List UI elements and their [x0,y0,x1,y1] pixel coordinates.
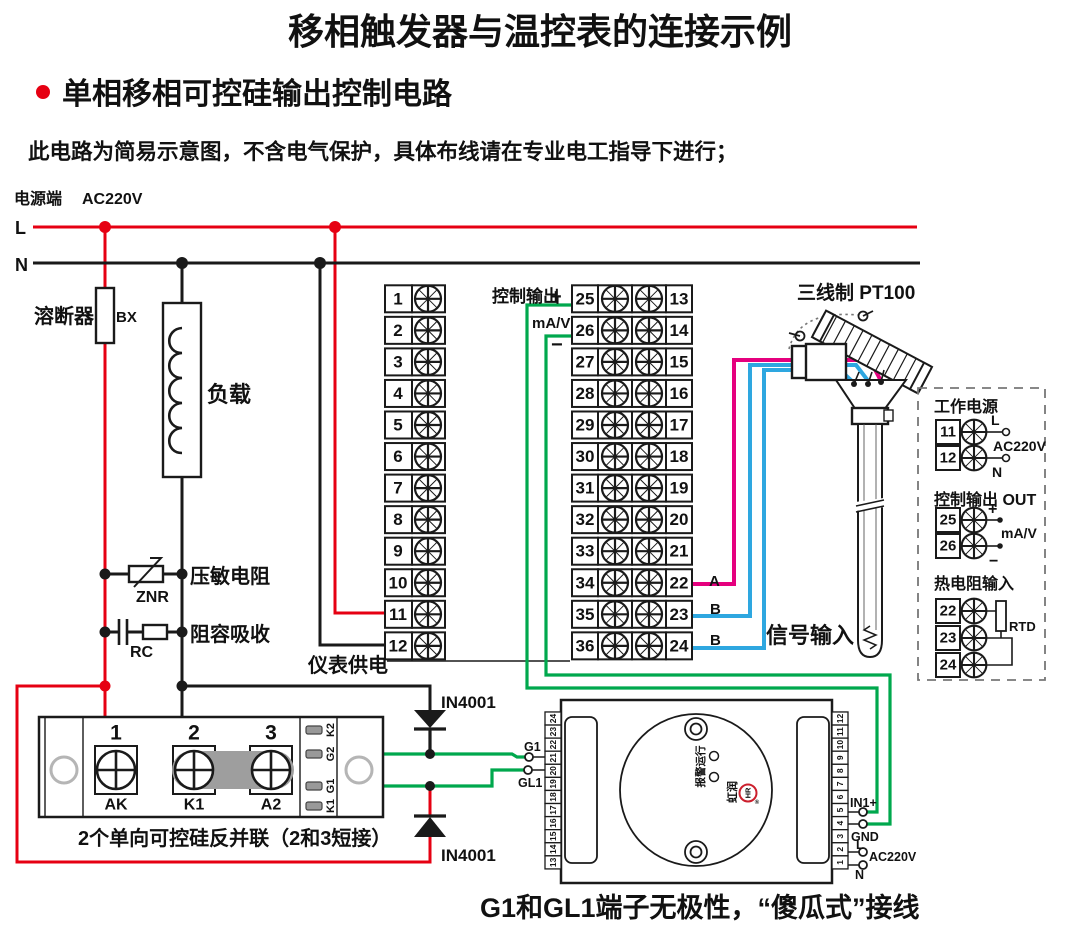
screw-terminal-icon [415,601,441,627]
terminal-number: 27 [576,352,595,371]
terminal-number: 7 [835,781,845,786]
svg-text:虹润: 虹润 [725,781,739,803]
fuse-label: 溶断器 [34,304,95,328]
terminal-number: 15 [548,831,558,841]
alarm-label: 报警 [694,766,707,787]
svg-text:2: 2 [188,722,200,745]
svg-text:+: + [988,501,997,518]
terminal-number: 13 [670,289,689,308]
sensor-flange [852,408,888,424]
gl1-label: GL1 [518,776,542,790]
panel-mav: mA/V [1001,525,1037,541]
load-label: 负载 [207,382,251,407]
screw-terminal-icon [602,317,628,343]
terminal-number: 22 [548,740,558,750]
rc-code: RC [130,644,154,661]
trigger-right-strip: 121110987654321 [832,712,848,869]
svg-text:®: ® [755,799,760,806]
screw-terminal-icon [636,444,662,470]
terminal-number: 6 [835,794,845,799]
terminal-number: 2 [393,321,402,340]
panel-voltage: AC220V [993,438,1047,454]
terminal-number: 19 [548,779,558,789]
svg-text:3: 3 [265,722,277,745]
trigger-voltage-label: AC220V [869,850,917,864]
alarm-led [710,773,719,782]
trigger-left-connections: G1 GL1 [518,740,545,790]
terminal-number: 24 [548,714,558,724]
terminal-number: 7 [393,479,402,498]
screw-terminal-icon [636,507,662,533]
terminal-number: 17 [548,805,558,815]
screw-terminal-icon [602,444,628,470]
terminal-number: 18 [670,447,689,466]
screw-terminal-icon [415,444,441,470]
terminal-number: 9 [835,755,845,760]
terminal-number: 20 [548,766,558,776]
screw-terminal-icon [415,633,441,659]
panel-power-title: 工作电源 [934,397,998,416]
terminal-number: 33 [576,542,595,561]
terminal-number: 6 [393,447,402,466]
terminal-number: 2 [835,847,845,852]
svg-text:A2: A2 [261,797,282,814]
terminal-number: 32 [576,510,595,529]
pt100-sensor: 三线制 PT100 [789,281,932,657]
svg-text:HR: HR [744,787,753,798]
terminal-number: 11 [835,727,845,736]
screw-terminal-icon [415,507,441,533]
ctrl-minus-label: − [551,334,563,356]
in1-label: IN1+ [850,796,877,810]
terminal-number: 24 [670,636,689,655]
terminal-number: 35 [576,605,595,624]
panel-row-26: 26 − [936,534,1003,570]
screw-terminal-icon [636,475,662,501]
ctrl-plus-label: + [550,286,562,308]
screw-terminal-icon [636,286,662,312]
rc-snubber-symbol: 阻容吸收 RC [105,619,270,661]
screw-terminal-icon [415,380,441,406]
svg-text:L: L [991,412,1000,428]
terminal-number: 9 [393,542,402,561]
terminal-number: 30 [576,447,595,466]
line-n-label: N [15,255,28,275]
rc-label: 阻容吸收 [190,622,270,646]
load-symbol: 负载 [163,303,251,477]
svg-text:N: N [992,464,1002,480]
panel-rtd-title: 热电阻输入 [934,574,1014,593]
terminal-number: 10 [835,740,845,750]
svg-text:IN4001: IN4001 [441,693,496,712]
terminal-number: 21 [670,542,689,561]
screw-terminal-icon [415,286,441,312]
terminal-number: 22 [670,573,689,592]
svg-text:11: 11 [940,424,956,441]
svg-text:−: − [989,553,998,570]
line-l-label: L [15,218,26,238]
terminal-number: 14 [548,844,558,854]
trigger-left-strip: 242322212019181716151413 [545,712,561,869]
varistor-symbol: 压敏电阻 ZNR [105,558,270,606]
screw-terminal-icon [602,286,628,312]
wire-b2-label: B [710,632,721,649]
sensor-body [806,344,846,380]
svg-text:25: 25 [940,512,957,529]
scr-module: 1 2 3 AK K1 A2 K2 G2 G1 K1 2个单向可控硅反并联（2和… [39,717,391,850]
terminal-number: 10 [389,573,408,592]
terminal-number: 19 [670,479,689,498]
svg-text:K1: K1 [325,799,337,813]
diagram-canvas: 移相触发器与温控表的连接示例 单相移相可控硅输出控制电路 此电路为简易示意图，不… [0,0,1080,948]
trigger-l-label: L [856,838,864,852]
terminal-number: 8 [835,768,845,773]
screw-terminal-icon [602,633,628,659]
wire-b1-label: B [710,601,721,618]
terminal-number: 4 [393,384,403,403]
terminal-number: 14 [670,321,689,340]
g1-label: G1 [524,740,541,754]
sensor-tube [858,424,882,657]
svg-text:IN4001: IN4001 [441,846,496,865]
svg-text:K1: K1 [184,797,205,814]
bullet-dot [36,85,50,99]
svg-text:G1: G1 [325,779,337,794]
screw-terminal-icon [636,570,662,596]
screw-terminal-icon [602,412,628,438]
bottom-note: G1和GL1端子无极性，“傻瓜式”接线 [480,893,920,923]
terminal-number: 12 [389,636,408,655]
run-led [710,752,719,761]
svg-text:22: 22 [940,603,957,620]
screw-terminal-icon [602,538,628,564]
terminal-number: 15 [670,352,689,371]
svg-text:23: 23 [940,630,957,647]
terminal-detail-panel: 工作电源 11 L AC220V 12 N 控制输出 OUT 25 + mA [918,388,1047,680]
terminal-number: 31 [576,479,595,498]
svg-text:26: 26 [940,538,957,555]
terminal-number: 11 [389,605,407,624]
scr-caption: 2个单向可控硅反并联（2和3短接） [78,826,391,850]
terminal-number: 34 [576,573,595,592]
terminal-number: 36 [576,636,595,655]
terminal-number: 20 [670,510,689,529]
terminal-number: 5 [835,807,845,812]
diode-bottom: IN4001 [414,816,496,865]
screw-terminal-icon [415,349,441,375]
screw-terminal-icon [636,412,662,438]
terminal-number: 26 [576,321,595,340]
terminal-number: 23 [670,605,689,624]
terminal-number: 16 [548,818,558,828]
meter-left-terminal-block: 123456789101112 [385,285,445,659]
terminal-number: 13 [548,857,558,867]
screw-terminal-icon [602,349,628,375]
power-source-label: 电源端 [14,189,62,208]
terminal-number: 28 [576,384,595,403]
screw-terminal-icon [636,380,662,406]
screw-terminal-icon [602,380,628,406]
terminal-number: 1 [393,289,402,308]
page-title: 移相触发器与温控表的连接示例 [288,11,792,52]
power-voltage-label: AC220V [82,191,143,208]
screw-terminal-icon [602,601,628,627]
terminal-number: 18 [548,792,558,802]
screw-terminal-icon [636,633,662,659]
trigger-module: 运行 报警 虹润 HR ® [561,700,832,883]
screw-terminal-icon [602,475,628,501]
terminal-number: 23 [548,727,558,737]
terminal-number: 1 [835,860,845,865]
panel-rtd-label: RTD [1009,619,1036,634]
meter-mid-terminal-block: 252627282930313233343536 [572,285,666,659]
warning-note: 此电路为简易示意图，不含电气保护，具体布线请在专业电工指导下进行； [28,139,738,164]
screw-terminal-icon [415,475,441,501]
screw-terminal-icon [415,570,441,596]
terminal-number: 3 [835,834,845,839]
panel-row-22: 22 [936,599,986,624]
sensor-funnel [836,380,906,410]
screw-terminal-icon [415,412,441,438]
terminal-number: 25 [576,289,595,308]
screw-terminal-icon [636,349,662,375]
meter-right-terminal-numbers: 131415161718192021222324 [666,285,692,659]
svg-text:AK: AK [104,797,128,814]
terminal-number: 5 [393,416,402,435]
fuse-code: BX [116,309,137,326]
terminal-number: 4 [835,821,845,826]
panel-out-title: 控制输出 OUT [934,490,1036,509]
sensor-flange-tab [884,410,893,421]
diode-top: IN4001 [414,693,496,754]
screw-terminal-icon [636,538,662,564]
signal-input-label: 信号输入 [766,623,854,648]
terminal-number: 3 [393,352,402,371]
svg-text:1: 1 [110,722,122,745]
screw-terminal-icon [636,317,662,343]
subtitle: 单相移相可控硅输出控制电路 [62,78,453,111]
run-label: 运行 [694,745,707,766]
panel-row-24: 24 [936,653,986,678]
meter-supply-label: 仪表供电 [307,653,388,677]
trigger-right-connections: IN1+ GND L AC220V N [848,796,917,882]
svg-text:24: 24 [940,657,957,674]
terminal-number: 29 [576,416,595,435]
ctrl-mav-label: mA/V [532,315,570,332]
svg-text:K2: K2 [325,723,337,737]
pt100-label: 三线制 PT100 [797,281,915,304]
terminal-number: 21 [548,753,558,763]
screw-terminal-icon [415,538,441,564]
trigger-n-label: N [855,868,864,882]
screw-terminal-icon [602,507,628,533]
panel-row-23: 23 [936,626,986,651]
wire-a-label: A [709,573,720,590]
terminal-number: 16 [670,384,689,403]
varistor-code: ZNR [136,589,169,606]
screw-terminal-icon [636,601,662,627]
terminal-number: 12 [835,714,845,724]
screw-terminal-icon [415,317,441,343]
svg-text:G2: G2 [325,747,337,762]
wiring-diagram-page: 移相触发器与温控表的连接示例 单相移相可控硅输出控制电路 此电路为简易示意图，不… [0,0,1080,948]
fuse-symbol: 溶断器 BX [34,288,137,343]
screw-terminal-icon [602,570,628,596]
terminal-number: 8 [393,510,402,529]
terminal-number: 17 [670,416,689,435]
svg-text:12: 12 [940,450,957,467]
varistor-label: 压敏电阻 [190,564,270,588]
